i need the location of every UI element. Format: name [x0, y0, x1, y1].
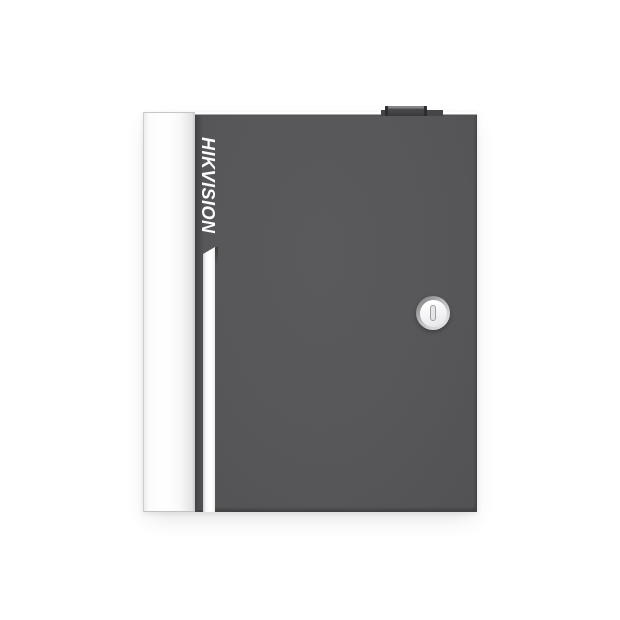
accent-stripe [203, 247, 215, 512]
brand-logo: HIKVISION [198, 137, 218, 231]
cam-lock [416, 296, 450, 330]
product-photo: HIKVISION [0, 0, 620, 620]
keyhole-icon [430, 305, 436, 321]
enclosure: HIKVISION [143, 112, 477, 512]
lock-face [420, 300, 447, 327]
accent-stripe-shadow [215, 246, 218, 266]
hinge-side-panel [143, 112, 195, 512]
top-protrusion [385, 106, 427, 116]
